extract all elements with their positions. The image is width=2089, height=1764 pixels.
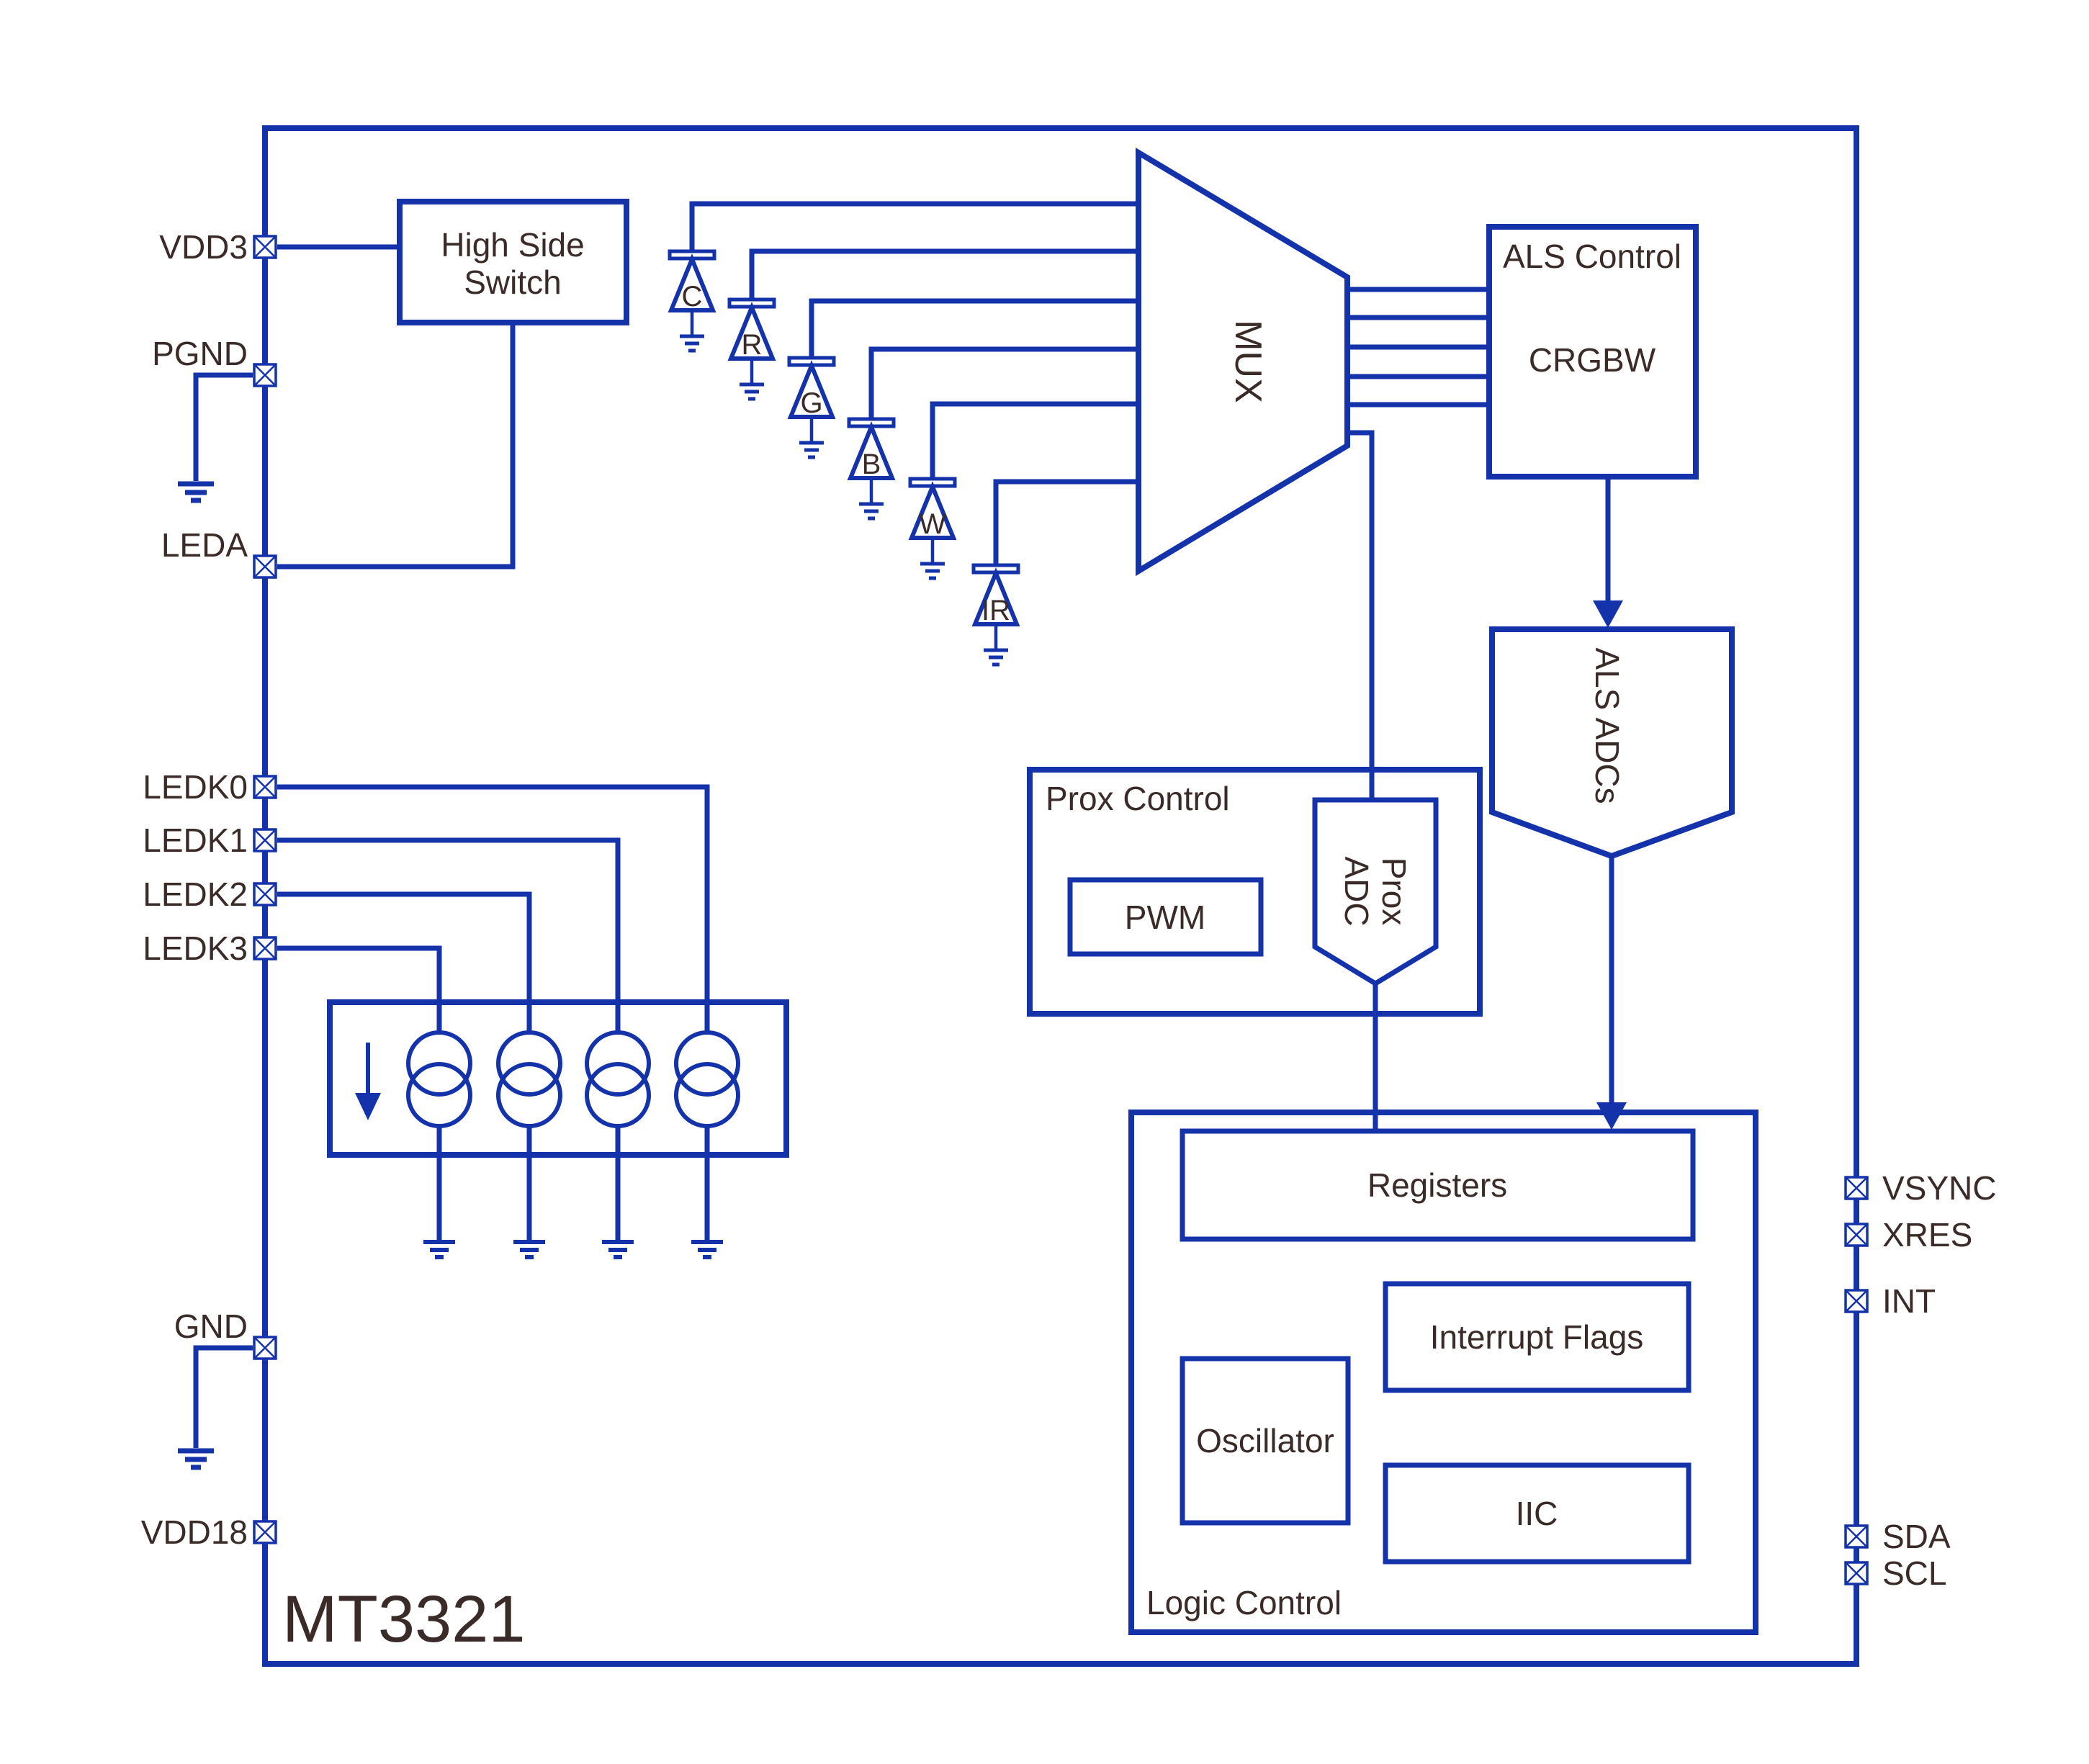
pin-pgnd — [254, 364, 276, 386]
iic-label: IIC — [1516, 1495, 1558, 1532]
pin-label-ledk3: LEDK3 — [143, 930, 248, 967]
wire-pgnd — [196, 375, 253, 481]
als-adcs-label: ALS ADCs — [1589, 647, 1626, 804]
logic-control-title: Logic Control — [1146, 1584, 1342, 1621]
pin-label-ledk0: LEDK0 — [143, 768, 248, 806]
prox-control-title: Prox Control — [1046, 780, 1230, 817]
pin-scl — [1846, 1562, 1867, 1584]
diode-label: IR — [981, 595, 1010, 626]
high-side-switch-label-line1: High Side — [441, 226, 584, 264]
interrupt-flags-label: Interrupt Flags — [1430, 1318, 1644, 1356]
diode-label: W — [919, 508, 946, 540]
prox-adc-label: Prox ADC — [1338, 856, 1413, 926]
pin-label-vdd18: VDD18 — [141, 1513, 248, 1551]
diagram-canvas: C R G B W — [0, 0, 2089, 1764]
pin-ledk1 — [254, 829, 276, 851]
pin-label-pgnd: PGND — [152, 335, 248, 372]
pin-label-ledk1: LEDK1 — [143, 822, 248, 859]
pin-vsync — [1846, 1177, 1867, 1199]
pin-label-vsync: VSYNC — [1882, 1169, 1996, 1207]
pwm-label: PWM — [1125, 899, 1205, 936]
chip-name: MT3321 — [282, 1583, 526, 1656]
pin-ledk2 — [254, 883, 276, 905]
pin-label-leda: LEDA — [161, 526, 248, 564]
als-control-crgbw-label: CRGBW — [1529, 341, 1656, 379]
oscillator-label: Oscillator — [1196, 1422, 1334, 1459]
high-side-switch-label-line2: Switch — [464, 264, 561, 301]
pin-label-int: INT — [1882, 1282, 1936, 1320]
pin-label-ledk2: LEDK2 — [143, 876, 248, 913]
pin-label-sda: SDA — [1882, 1518, 1951, 1555]
block-diagram: C R G B W — [0, 0, 2089, 1764]
pin-ledk3 — [254, 937, 276, 959]
pin-label-xres: XRES — [1882, 1216, 1972, 1254]
registers-label: Registers — [1367, 1166, 1507, 1204]
pin-vdd3 — [254, 236, 276, 258]
diode-label: B — [862, 449, 881, 480]
als-control-title: ALS Control — [1503, 238, 1681, 275]
prox-adc-label-line2: ADC — [1338, 856, 1375, 926]
mux-label: MUX — [1227, 320, 1269, 403]
diode-label: R — [742, 329, 763, 361]
pin-gnd — [254, 1337, 276, 1359]
pgnd-ground-icon — [178, 484, 214, 500]
pin-label-scl: SCL — [1882, 1554, 1946, 1592]
pin-label-gnd: GND — [174, 1308, 248, 1345]
pin-int — [1846, 1290, 1867, 1312]
pin-label-vdd3: VDD3 — [159, 228, 248, 266]
pin-sda — [1846, 1526, 1867, 1547]
wire-gnd — [196, 1348, 253, 1448]
diode-label: G — [800, 387, 822, 419]
pin-vdd18 — [254, 1521, 276, 1543]
pin-xres — [1846, 1224, 1867, 1246]
prox-adc-label-line1: Prox — [1375, 858, 1413, 926]
pin-leda — [254, 556, 276, 577]
gnd-ground-icon — [178, 1451, 214, 1467]
diode-label: C — [682, 281, 703, 312]
pin-ledk0 — [254, 776, 276, 798]
